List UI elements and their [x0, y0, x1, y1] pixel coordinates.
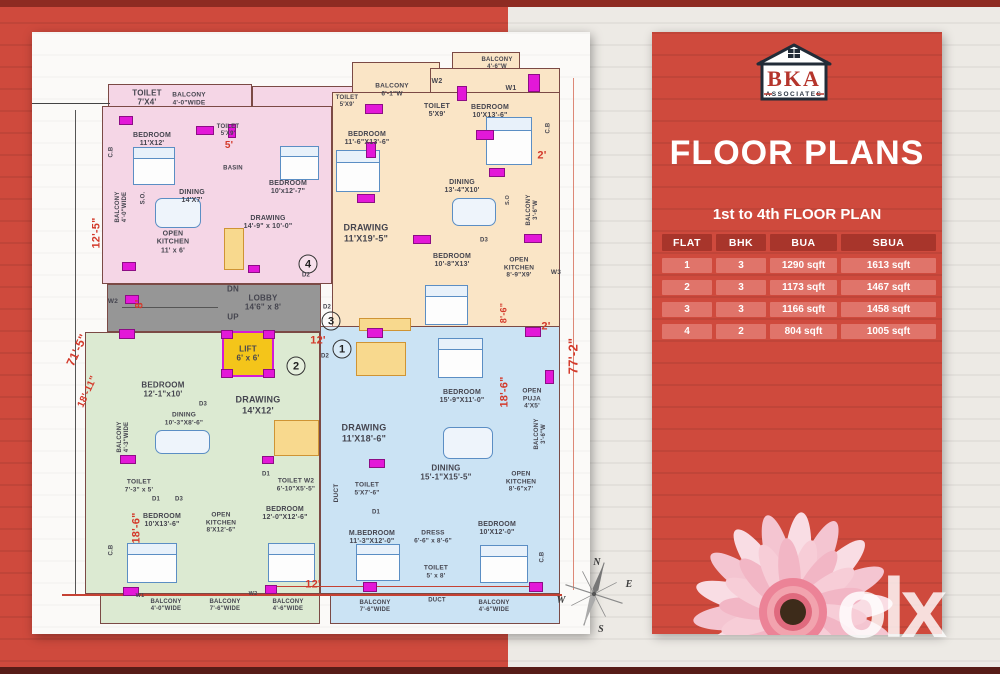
plan-label: S [598, 624, 604, 636]
plan-label: TOILET W2 6'-10"X5'-5" [277, 477, 315, 492]
plan-label: W2 [432, 78, 443, 86]
door-marker [357, 194, 375, 203]
flat-number: 2 [287, 357, 306, 376]
door-marker [489, 168, 505, 177]
furniture-bed [127, 543, 177, 583]
plan-label: TOILET 5' x 8' [424, 564, 448, 579]
plan-label: D2 [302, 272, 310, 279]
furniture-sofa [274, 420, 319, 456]
plan-label: W1 [136, 593, 145, 599]
door-marker [120, 455, 136, 464]
table-header-cell: FLAT [662, 234, 712, 251]
plan-label: DN [227, 284, 239, 293]
plan-label: OPEN KITCHEN 8'-9"X9' [504, 257, 534, 280]
plan-label: DRAWING 11'X19'-5" [344, 222, 389, 243]
table-cell: 4 [662, 324, 712, 339]
plan-label: 2' [537, 150, 546, 163]
plan-label: OPEN KITCHEN 11' x 6' [157, 231, 190, 256]
plan-line [573, 78, 574, 590]
door-marker [476, 130, 494, 140]
plan-label: BALCONY 4'-3"WIDE [117, 421, 131, 452]
plan-label: BEDROOM 10'X13'-6" [471, 104, 509, 121]
furniture-bed [438, 338, 483, 378]
door-marker [248, 265, 260, 273]
plan-label: BALCONY 4'-6"W [481, 57, 512, 71]
furniture-bed [480, 545, 528, 583]
top-border-strip [0, 0, 1000, 7]
page-title: FLOOR PLANS [652, 134, 942, 173]
furniture-bed [280, 146, 319, 180]
plan-label: BEDROOM 12'-1"x10' [141, 381, 184, 400]
plan-label: D1 [152, 496, 160, 503]
plan-label: BEDROOM 11'-6"X13'-6" [345, 131, 390, 148]
plan-label: DINING 10'-3"X8'-6" [165, 411, 203, 426]
plan-label: D2 [323, 304, 331, 311]
plan-label: S.O. [140, 192, 147, 205]
table-header-cell: BHK [716, 234, 766, 251]
plan-label: DRAWING 11'X18'-6" [342, 422, 387, 443]
plan-label: BEDROOM 12'-0"X12'-6" [262, 506, 307, 523]
plan-label: UP [227, 312, 239, 321]
furniture-table [155, 430, 210, 454]
plan-label: BALCONY 4'-0"WIDE [172, 91, 206, 106]
table-row: 231173 sqft1467 sqft [662, 280, 936, 295]
plan-label: 12' [310, 335, 325, 348]
plan-label: 77'-2" [565, 338, 580, 374]
plan-label: 8' [134, 299, 147, 308]
plan-label: BALCONY 3'-6"W [526, 194, 540, 225]
plan-label: E [626, 579, 633, 591]
plan-label: DINING 15'-1"X15'-5" [420, 464, 471, 483]
plan-label: BEDROOM 10'X12'-0" [478, 521, 516, 538]
furniture-bed [356, 544, 400, 581]
plan-line [32, 103, 110, 104]
flyer: 4321TOILET 7'X4'BALCONY 4'-0"WIDEC.BBEDR… [0, 0, 1000, 674]
door-marker [545, 370, 554, 384]
table-cell: 1005 sqft [841, 324, 936, 339]
plan-label: TOILET 5'X7'-6" [354, 481, 379, 496]
plan-label: W2 [249, 591, 258, 597]
furniture-table [452, 198, 496, 226]
bottom-border-strip [0, 667, 1000, 674]
furniture-bed [425, 285, 468, 325]
plan-label: TOILET 7'-3" x 5' [125, 478, 153, 493]
flat-area-table: FLATBHKBUASBUA131290 sqft1613 sqft231173… [662, 234, 936, 346]
door-marker [365, 104, 383, 114]
table-cell: 804 sqft [770, 324, 837, 339]
table-cell: 3 [662, 302, 712, 317]
furniture-sofa [224, 228, 244, 270]
plan-label: C.B [108, 147, 115, 158]
plan-label: 18'-6" [499, 376, 512, 407]
olx-watermark: olx [836, 566, 942, 650]
plan-label: BALCONY 4'-6"WIDE [272, 599, 303, 613]
plan-label: BEDROOM 10'X13'-6" [143, 513, 181, 530]
door-marker [196, 126, 214, 135]
door-marker [525, 327, 541, 337]
bed-pillow [439, 339, 482, 350]
bed-pillow [481, 546, 527, 557]
furniture-bed [133, 147, 175, 185]
plan-label: BALCONY 7'-6"WIDE [359, 600, 390, 614]
plan-label: C.B [108, 545, 115, 556]
plan-label: OPEN KITCHEN 8'-6"x7' [506, 471, 536, 494]
table-cell: 2 [662, 280, 712, 295]
table-header-cell: BUA [770, 234, 837, 251]
plan-label: BALCONY 4'-0"WIDE [115, 191, 129, 222]
plan-label: BALCONY 6'-1"W [375, 82, 409, 97]
furniture-sofa [356, 342, 406, 376]
bed-pillow [269, 544, 314, 555]
plan-label: BEDROOM 10'-8"X13' [433, 253, 471, 270]
plan-label: BEDROOM 11'X12' [133, 132, 171, 149]
plan-label: DRAWING 14'X12' [236, 394, 281, 415]
table-cell: 2 [716, 324, 766, 339]
plan-label: DRAWING 14'-9" x 10'-0" [244, 215, 293, 232]
plan-label: W2 [108, 298, 118, 306]
door-marker [262, 456, 274, 464]
table-cell: 1290 sqft [770, 258, 837, 273]
furniture-bed [268, 543, 315, 582]
plan-label: W [556, 595, 565, 607]
brand-name: BKA [767, 66, 821, 91]
bed-pillow [128, 544, 176, 555]
plan-label: C.B [545, 123, 552, 134]
bed-pillow [281, 147, 318, 157]
plan-label: S.O [505, 195, 511, 205]
plan-label: DRESS 6'-6" x 8'-6" [414, 529, 452, 544]
door-marker [265, 585, 277, 594]
plan-label: TOILET 7'X4' [132, 89, 162, 108]
furniture-bed [486, 117, 532, 165]
plan-label: 18'-6" [131, 512, 144, 543]
plan-label: BEDROOM 10'x12'-7" [269, 180, 307, 197]
plan-label: OPEN KITCHEN 8'X12'-6" [206, 512, 236, 535]
furniture-table [443, 427, 493, 459]
plan-label: 5' [225, 140, 233, 152]
table-row: 42804 sqft1005 sqft [662, 324, 936, 339]
bed-pillow [426, 286, 467, 297]
door-marker [119, 329, 135, 339]
plan-label: BASIN [223, 165, 243, 172]
plan-label: 12' [305, 579, 320, 592]
flat-number: 3 [322, 312, 341, 331]
door-marker [457, 86, 467, 101]
plan-label: D1 [262, 471, 270, 478]
table-cell: 3 [716, 302, 766, 317]
plan-label: OPEN PUJA 4'X5' [522, 388, 541, 411]
plan-label: DUCT [428, 597, 445, 604]
plan-label: TOILET 5'X9' [424, 103, 450, 120]
door-marker [524, 234, 542, 243]
plan-label: BALCONY 4'-6"WIDE [478, 600, 509, 614]
plan-label: W3 [551, 269, 561, 277]
table-cell: 1173 sqft [770, 280, 837, 295]
table-cell: 1 [662, 258, 712, 273]
plan-label: DUCT [333, 484, 341, 503]
bed-pillow [134, 148, 174, 159]
plan-label: BALCONY 7'-6"WIDE [209, 599, 240, 613]
plan-label: D1 [372, 509, 380, 516]
plan-label: BEDROOM 15'-9"X11'-0" [440, 389, 485, 406]
plan-label: TOILET 5'X9' [217, 124, 239, 138]
plan-label: LOBBY 14'6" x 8' [245, 294, 281, 313]
plan-label: 8'-6" [499, 303, 510, 323]
plan-label: D2 [321, 353, 329, 360]
door-marker [119, 116, 133, 125]
door-marker [263, 330, 275, 339]
plan-label: W1 [506, 85, 517, 93]
plan-label: 2' [541, 321, 550, 334]
door-marker [413, 235, 431, 244]
door-marker [263, 369, 275, 378]
door-marker [363, 582, 377, 592]
plan-label: TOILET 5'X9' [336, 95, 358, 109]
door-marker [367, 328, 383, 338]
table-row: 131290 sqft1613 sqft [662, 258, 936, 273]
table-header-cell: SBUA [841, 234, 936, 251]
plan-label: M.BEDROOM 11'-3"X12'-0" [349, 530, 395, 547]
door-marker [369, 459, 385, 468]
door-marker [221, 330, 233, 339]
table-cell: 1458 sqft [841, 302, 936, 317]
door-marker [122, 262, 136, 271]
table-cell: 1166 sqft [770, 302, 837, 317]
bed-pillow [357, 545, 399, 555]
plan-label: 12'-5" [91, 217, 104, 248]
flat-number: 4 [299, 255, 318, 274]
plan-label: DINING 13'-4"X10' [444, 179, 479, 196]
plan-label: D3 [480, 237, 488, 244]
table-header-row: FLATBHKBUASBUA [662, 234, 936, 251]
table-cell: 3 [716, 258, 766, 273]
bka-associates-logo: BKA ASSOCIATES [752, 42, 836, 102]
plan-label: BALCONY 4'-0"WIDE [150, 599, 181, 613]
plan-label: D3 [175, 496, 183, 503]
table-cell: 1613 sqft [841, 258, 936, 273]
plan-label: DINING 14'X7' [179, 189, 205, 206]
table-cell: 1467 sqft [841, 280, 936, 295]
flat-number: 1 [333, 340, 352, 359]
plan-label: LIFT 6' x 6' [237, 345, 260, 364]
door-marker [529, 582, 543, 592]
plan-label: N [593, 557, 600, 569]
table-row: 331166 sqft1458 sqft [662, 302, 936, 317]
door-marker [528, 74, 540, 92]
door-marker [221, 369, 233, 378]
plan-label: BALCONY 3'-6"W [534, 418, 548, 449]
plan-label: C.B [539, 552, 546, 563]
page-subtitle: 1st to 4th FLOOR PLAN [652, 206, 942, 223]
brand-subtitle: ASSOCIATES [766, 91, 823, 98]
table-cell: 3 [716, 280, 766, 295]
plan-label: D3 [199, 401, 207, 408]
